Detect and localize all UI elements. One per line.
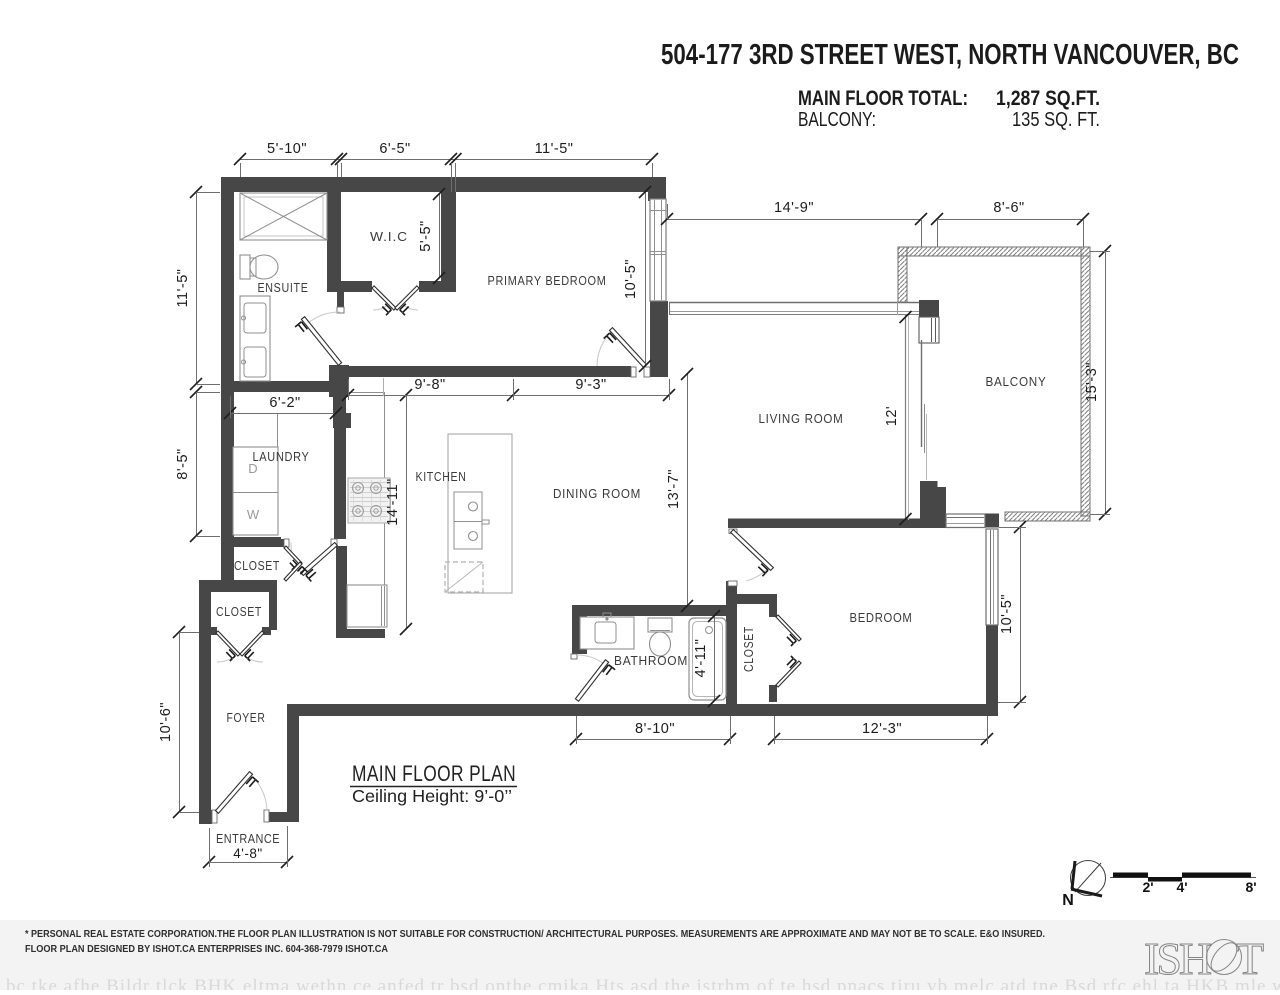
svg-text:504-177 3RD STREET WEST, NORTH: 504-177 3RD STREET WEST, NORTH VANCOUVER… xyxy=(661,39,1239,71)
svg-text:9'-3": 9'-3" xyxy=(575,377,606,393)
svg-text:CLOSET: CLOSET xyxy=(741,626,756,672)
svg-text:10'-5": 10'-5" xyxy=(999,594,1015,634)
svg-text:135 SQ. FT.: 135 SQ. FT. xyxy=(1012,109,1100,131)
svg-text:9'-8": 9'-8" xyxy=(414,377,445,393)
svg-text:FLOOR PLAN DESIGNED BY ISHOT.C: FLOOR PLAN DESIGNED BY ISHOT.CA ENTERPRI… xyxy=(25,943,388,955)
svg-text:LIVING ROOM: LIVING ROOM xyxy=(759,411,844,426)
svg-text:MAIN FLOOR TOTAL:: MAIN FLOOR TOTAL: xyxy=(798,87,968,110)
svg-text:* PERSONAL REAL ESTATE CORPORA: * PERSONAL REAL ESTATE CORPORATION.THE F… xyxy=(25,928,1045,940)
svg-text:5'-5": 5'-5" xyxy=(418,220,434,251)
svg-text:W.I.C: W.I.C xyxy=(370,229,408,244)
svg-text:DINING ROOM: DINING ROOM xyxy=(553,486,641,501)
svg-text:W: W xyxy=(247,507,260,522)
svg-text:N: N xyxy=(1062,892,1074,909)
svg-text:8'-10": 8'-10" xyxy=(635,721,675,737)
svg-text:6'-5": 6'-5" xyxy=(379,141,410,157)
svg-text:4'-11": 4'-11" xyxy=(693,639,709,678)
svg-text:4': 4' xyxy=(1176,879,1187,895)
svg-text:bc tke afhe Bildr tlck BHK elt: bc tke afhe Bildr tlck BHK eltma wethn c… xyxy=(6,976,1280,990)
svg-text:5'-10": 5'-10" xyxy=(267,141,307,157)
svg-text:13'-7": 13'-7" xyxy=(666,469,682,509)
svg-text:14'-11": 14'-11" xyxy=(385,478,401,525)
svg-text:BEDROOM: BEDROOM xyxy=(850,610,913,625)
svg-text:10'-6": 10'-6" xyxy=(158,702,174,742)
svg-text:ENSUITE: ENSUITE xyxy=(258,280,309,295)
svg-text:11'-5": 11'-5" xyxy=(535,141,574,157)
svg-text:8'-5": 8'-5" xyxy=(175,448,191,479)
svg-text:15'-3": 15'-3" xyxy=(1084,362,1100,402)
svg-text:Ceiling Height: 9’-0’’: Ceiling Height: 9’-0’’ xyxy=(352,786,512,806)
svg-text:MAIN FLOOR PLAN: MAIN FLOOR PLAN xyxy=(352,761,516,786)
svg-text:ENTRANCE: ENTRANCE xyxy=(216,831,280,846)
svg-text:BALCONY: BALCONY xyxy=(986,374,1047,389)
svg-text:11'-5": 11'-5" xyxy=(175,269,191,308)
svg-text:LAUNDRY: LAUNDRY xyxy=(253,449,310,464)
svg-text:4'-8": 4'-8" xyxy=(233,846,262,861)
svg-text:2': 2' xyxy=(1142,879,1153,895)
svg-text:14'-9": 14'-9" xyxy=(774,200,814,216)
svg-text:8': 8' xyxy=(1245,879,1256,895)
svg-text:8'-6": 8'-6" xyxy=(993,200,1024,216)
svg-text:12'-3": 12'-3" xyxy=(862,721,902,737)
svg-text:1,287 SQ.FT.: 1,287 SQ.FT. xyxy=(996,87,1100,110)
svg-text:BATHROOM: BATHROOM xyxy=(614,653,688,668)
svg-text:CLOSET: CLOSET xyxy=(234,558,280,573)
svg-text:12': 12' xyxy=(884,406,900,426)
svg-text:CLOSET: CLOSET xyxy=(216,604,262,619)
svg-text:FOYER: FOYER xyxy=(227,710,266,725)
svg-text:10'-5": 10'-5" xyxy=(623,259,639,299)
svg-text:KITCHEN: KITCHEN xyxy=(416,469,467,484)
svg-text:BALCONY:: BALCONY: xyxy=(798,109,876,131)
svg-text:6'-2": 6'-2" xyxy=(269,395,300,411)
svg-text:PRIMARY BEDROOM: PRIMARY BEDROOM xyxy=(488,273,607,288)
